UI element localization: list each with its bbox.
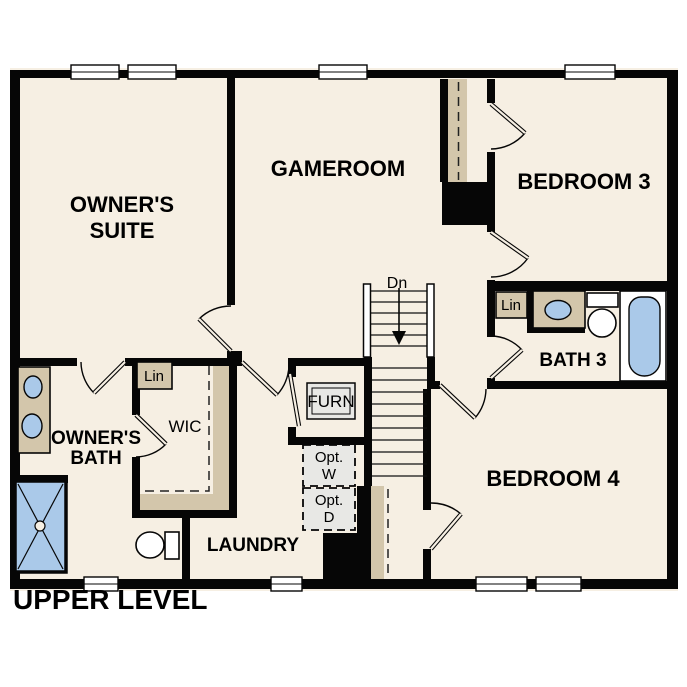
window [71, 65, 119, 79]
bathtub [620, 291, 666, 381]
room-label-bedroom4: BEDROOM 4 [486, 466, 620, 491]
label-opt-washer-1: Opt. [315, 449, 343, 466]
window [476, 577, 527, 591]
sink [545, 301, 571, 320]
label-opt-washer-2: W [322, 466, 337, 483]
stair-rail-right [427, 284, 434, 357]
toilet [136, 532, 179, 559]
floorplan-svg: OWNER'S SUITE GAMEROOM BEDROOM 3 BATH 3 … [0, 0, 687, 687]
wic-shelf-bottom [140, 494, 229, 510]
toilet [587, 293, 618, 337]
bedroom4-closet-shelf [371, 486, 384, 579]
room-label-laundry: LAUNDRY [207, 535, 300, 556]
plan-title: UPPER LEVEL [13, 584, 207, 615]
window [536, 577, 581, 591]
window [319, 65, 367, 79]
window [565, 65, 615, 79]
label-stairs-down: Dn [387, 275, 407, 292]
label-opt-dryer-1: Opt. [315, 492, 343, 509]
label-linen-bath3: Lin [501, 297, 521, 314]
sink [22, 414, 42, 438]
wic-shelf-right [213, 366, 229, 510]
bedroom3-closet-shelf [448, 79, 467, 182]
room-label-wic: WIC [168, 417, 201, 436]
floorplan-canvas: OWNER'S SUITE GAMEROOM BEDROOM 3 BATH 3 … [0, 0, 687, 687]
chase-block-top [442, 182, 495, 225]
label-opt-dryer-2: D [324, 509, 335, 526]
room-label-gameroom: GAMEROOM [271, 156, 405, 181]
window [128, 65, 176, 79]
label-linen-wic: Lin [144, 368, 164, 385]
shower [15, 481, 66, 572]
room-label-owners-bath-1: OWNER'S [51, 428, 141, 449]
sink [24, 376, 42, 398]
window [271, 577, 302, 591]
room-label-bath3: BATH 3 [539, 350, 606, 371]
room-label-owners-suite-2: SUITE [90, 218, 155, 243]
stair-rail-left [364, 284, 371, 357]
label-furnace: FURN [307, 392, 354, 411]
room-label-owners-suite-1: OWNER'S [70, 192, 174, 217]
room-label-bedroom3: BEDROOM 3 [517, 169, 650, 194]
room-label-owners-bath-2: BATH [70, 448, 121, 469]
